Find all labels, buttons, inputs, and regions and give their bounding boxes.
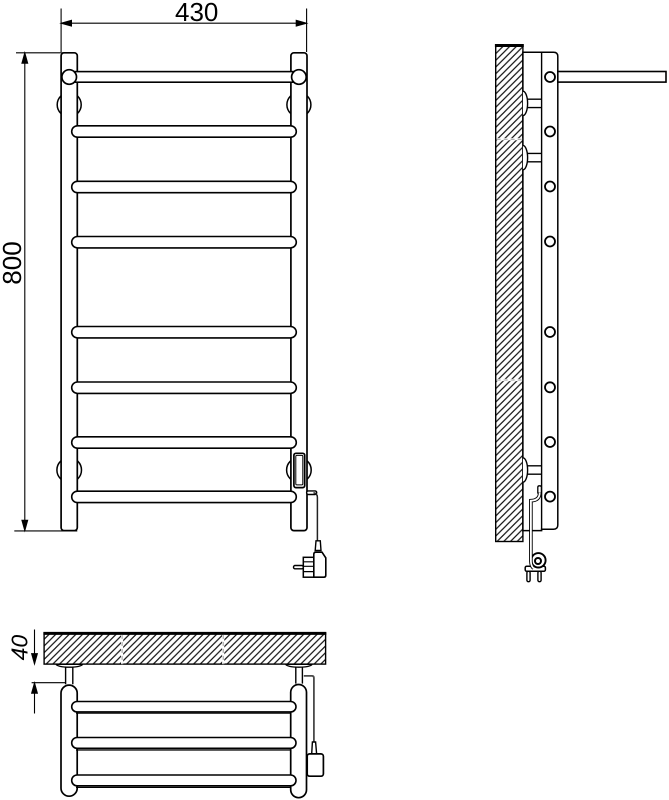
svg-text:40: 40 xyxy=(7,635,33,661)
svg-text:800: 800 xyxy=(0,241,27,284)
svg-text:430: 430 xyxy=(175,0,218,27)
